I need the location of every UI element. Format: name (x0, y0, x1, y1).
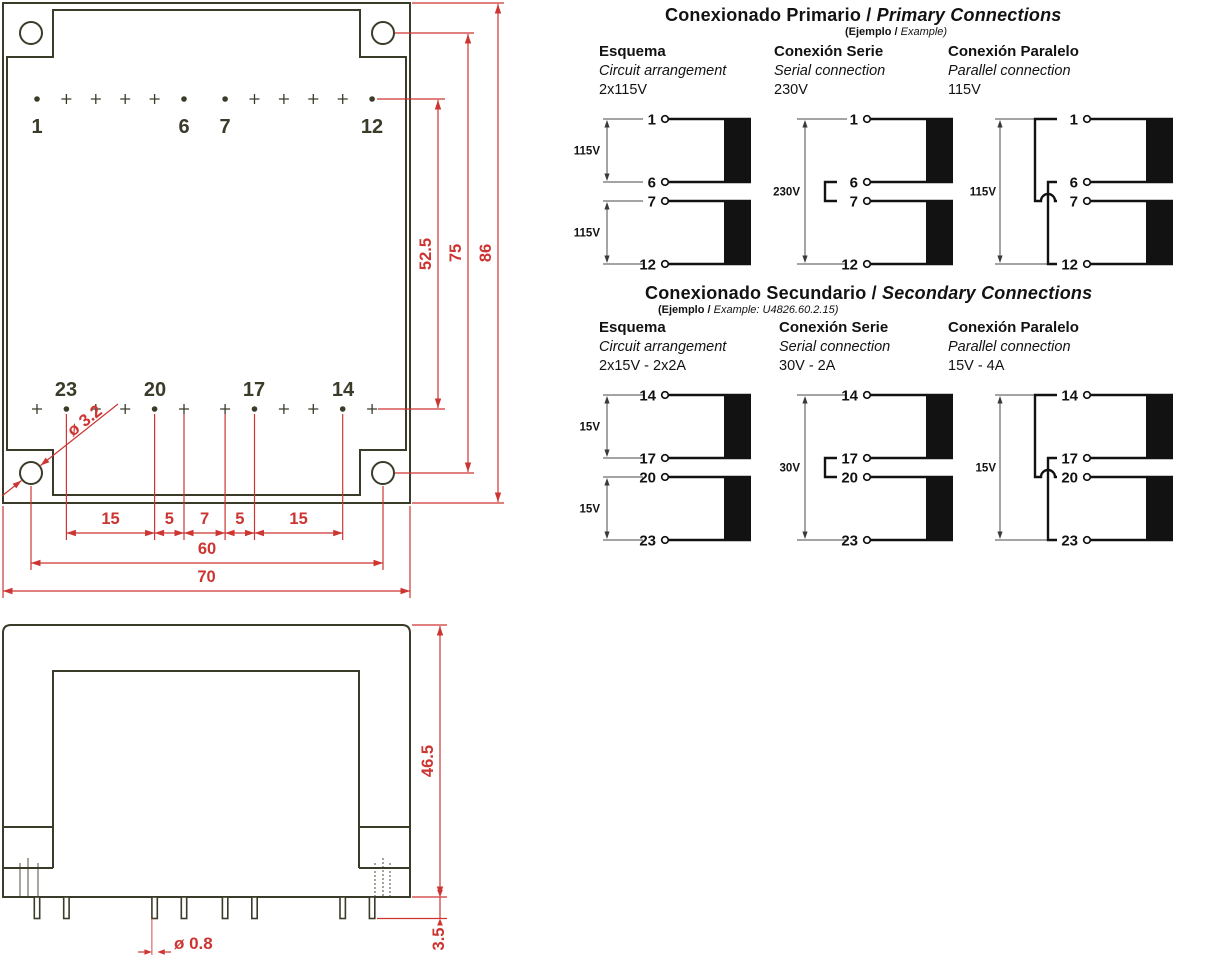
primary-paralelo-diagram: 115V16712 (972, 103, 1207, 275)
svg-text:115V: 115V (970, 187, 997, 199)
column-name-es: Conexión Paralelo (948, 318, 1079, 338)
svg-text:15V: 15V (580, 422, 601, 434)
pin-terminal (662, 455, 669, 462)
column-name-es: Conexión Paralelo (948, 42, 1079, 62)
secondary-section-title: Conexionado Secundario / Secondary Conne… (645, 283, 1092, 304)
side-view-pins (34, 897, 375, 919)
esquema-diagram-content: 115V115V16712 (574, 111, 751, 273)
column-value: 115V (948, 81, 1079, 101)
paralelo-diagram-content: 15V14172023 (976, 387, 1173, 549)
secondary-esquema-diagram: 15V15V14172023 (550, 379, 785, 551)
svg-text:115V: 115V (574, 146, 601, 158)
winding-block (926, 477, 953, 540)
winding-block (724, 395, 751, 458)
column-value: 15V - 4A (948, 357, 1079, 377)
secondary-title-en: Secondary Connections (882, 283, 1092, 303)
pin-label: 20 (144, 379, 166, 401)
column-name-en: Serial connection (774, 62, 885, 82)
transformer-datasheet-page: 1 6 7 12 23 20 17 14 (0, 0, 1212, 956)
secondary-paralelo-diagram: 15V14172023 (972, 379, 1207, 551)
pin-terminal (864, 116, 871, 123)
esquema-diagram-content: 15V15V14172023 (580, 387, 751, 549)
pin-terminal (864, 537, 871, 544)
column-name-es: Esquema (599, 42, 726, 62)
series-jumper (825, 182, 837, 201)
primary-title-en: Primary Connections (877, 5, 1062, 25)
column-value: 230V (774, 81, 885, 101)
dim-pin-rows: 52.5 (417, 238, 435, 270)
svg-text:23: 23 (841, 532, 858, 549)
svg-text:6: 6 (648, 174, 656, 191)
dim-pitch: 7 (200, 510, 209, 528)
column-name-es: Esquema (599, 318, 726, 338)
svg-text:7: 7 (850, 193, 858, 210)
pin-terminal (864, 198, 871, 205)
pin-terminal (1084, 116, 1091, 123)
transformer-body-outline (3, 3, 410, 503)
column-name-en: Parallel connection (948, 62, 1079, 82)
svg-text:14: 14 (639, 387, 656, 404)
secondary-serie-header: Conexión Serie Serial connection 30V - 2… (779, 318, 890, 377)
serie-diagram-content: 230V16712 (773, 111, 953, 273)
primary-esquema-diagram: 115V115V16712 (550, 103, 785, 275)
pin-terminal (1084, 261, 1091, 268)
series-jumper (825, 458, 837, 477)
svg-text:12: 12 (639, 256, 656, 273)
column-name-en: Parallel connection (948, 338, 1079, 358)
pin-label: 17 (243, 379, 265, 401)
pin-terminal (662, 474, 669, 481)
svg-text:17: 17 (1061, 450, 1078, 467)
dim-body-height: 46.5 (419, 745, 437, 777)
primary-paralelo-header: Conexión Paralelo Parallel connection 11… (948, 42, 1079, 101)
pin-terminal (662, 116, 669, 123)
winding-block (926, 119, 953, 182)
dim-pin-diameter: ø 0.8 (174, 934, 213, 953)
pin-terminal (1084, 537, 1091, 544)
svg-text:12: 12 (1061, 256, 1078, 273)
winding-block (1146, 201, 1173, 264)
pin-terminal (1084, 179, 1091, 186)
svg-text:23: 23 (639, 532, 656, 549)
svg-text:6: 6 (1070, 174, 1078, 191)
svg-text:14: 14 (841, 387, 858, 404)
svg-text:12: 12 (841, 256, 858, 273)
dim-width: 70 (197, 568, 215, 586)
parallel-jumper-outer (1035, 119, 1057, 201)
svg-text:15V: 15V (976, 463, 997, 475)
dim-pitch: 15 (101, 510, 119, 528)
pin-terminal (1084, 392, 1091, 399)
primary-esquema-header: Esquema Circuit arrangement 2x115V (599, 42, 726, 101)
svg-text:230V: 230V (773, 187, 800, 199)
secondary-serie-diagram: 30V14172023 (752, 379, 987, 551)
svg-text:17: 17 (841, 450, 858, 467)
column-name-es: Conexión Serie (779, 318, 890, 338)
secondary-esquema-header: Esquema Circuit arrangement 2x15V - 2x2A (599, 318, 726, 377)
column-name-en: Circuit arrangement (599, 338, 726, 358)
svg-text:6: 6 (850, 174, 858, 191)
dim-holes-v: 75 (447, 244, 465, 262)
pin-terminal (662, 537, 669, 544)
winding-block (1146, 119, 1173, 182)
primary-title-es: Conexionado Primario (665, 5, 861, 25)
svg-text:30V: 30V (780, 463, 801, 475)
primary-section-subtitle: (Ejemplo / Example) (845, 26, 947, 38)
primary-serie-diagram: 230V16712 (752, 103, 987, 275)
svg-text:1: 1 (1070, 111, 1078, 128)
top-view-drawing: 1 6 7 12 23 20 17 14 (0, 0, 510, 612)
column-name-en: Circuit arrangement (599, 62, 726, 82)
svg-text:20: 20 (1061, 469, 1078, 486)
title-separator: / (866, 283, 882, 303)
svg-text:20: 20 (841, 469, 858, 486)
pin-label: 6 (178, 116, 189, 138)
side-view-drawing: 46.5 3.5 ø 0.8 (0, 612, 510, 956)
column-value: 30V - 2A (779, 357, 890, 377)
secondary-title-es: Conexionado Secundario (645, 283, 866, 303)
svg-text:20: 20 (639, 469, 656, 486)
dim-height: 86 (477, 244, 495, 262)
svg-text:14: 14 (1061, 387, 1078, 404)
winding-block (926, 201, 953, 264)
dim-pin-length: 3.5 (430, 928, 448, 951)
column-value: 2x115V (599, 81, 726, 101)
svg-text:115V: 115V (574, 228, 601, 240)
pin-terminal (662, 261, 669, 268)
pin-label: 23 (55, 379, 77, 401)
svg-text:7: 7 (1070, 193, 1078, 210)
pin-terminal (1084, 474, 1091, 481)
winding-block (1146, 477, 1173, 540)
pin-terminal (1084, 198, 1091, 205)
pin-label: 7 (219, 116, 230, 138)
dim-holes-h: 60 (198, 540, 216, 558)
pin-label: 12 (361, 116, 383, 138)
dim-pitch: 15 (289, 510, 307, 528)
secondary-section-subtitle: (Ejemplo / Example: U4826.60.2.15) (658, 304, 838, 316)
pin-terminal (864, 392, 871, 399)
pin-terminal (662, 198, 669, 205)
pin-terminal (864, 179, 871, 186)
svg-text:1: 1 (850, 111, 858, 128)
svg-text:17: 17 (639, 450, 656, 467)
winding-block (724, 477, 751, 540)
svg-text:15V: 15V (580, 504, 601, 516)
winding-block (1146, 395, 1173, 458)
secondary-paralelo-header: Conexión Paralelo Parallel connection 15… (948, 318, 1079, 377)
pin-terminal (864, 455, 871, 462)
pin-label: 1 (31, 116, 42, 138)
svg-text:7: 7 (648, 193, 656, 210)
title-separator: / (861, 5, 877, 25)
pin-terminal (864, 474, 871, 481)
column-value: 2x15V - 2x2A (599, 357, 726, 377)
winding-block (724, 119, 751, 182)
dim-pitch: 5 (165, 510, 174, 528)
svg-text:23: 23 (1061, 532, 1078, 549)
pin-label: 14 (332, 379, 355, 401)
pin-terminal (864, 261, 871, 268)
paralelo-diagram-content: 115V16712 (970, 111, 1173, 273)
column-name-en: Serial connection (779, 338, 890, 358)
serie-diagram-content: 30V14172023 (780, 387, 953, 549)
primary-section-title: Conexionado Primario / Primary Connectio… (665, 5, 1062, 26)
svg-text:1: 1 (648, 111, 656, 128)
winding-block (926, 395, 953, 458)
pin-terminal (662, 179, 669, 186)
pin-terminal (1084, 455, 1091, 462)
pin-terminal (662, 392, 669, 399)
column-name-es: Conexión Serie (774, 42, 885, 62)
dim-pitch: 5 (235, 510, 244, 528)
side-body-outline (3, 625, 410, 897)
winding-block (724, 201, 751, 264)
parallel-jumper-outer (1035, 395, 1057, 477)
primary-serie-header: Conexión Serie Serial connection 230V (774, 42, 885, 101)
